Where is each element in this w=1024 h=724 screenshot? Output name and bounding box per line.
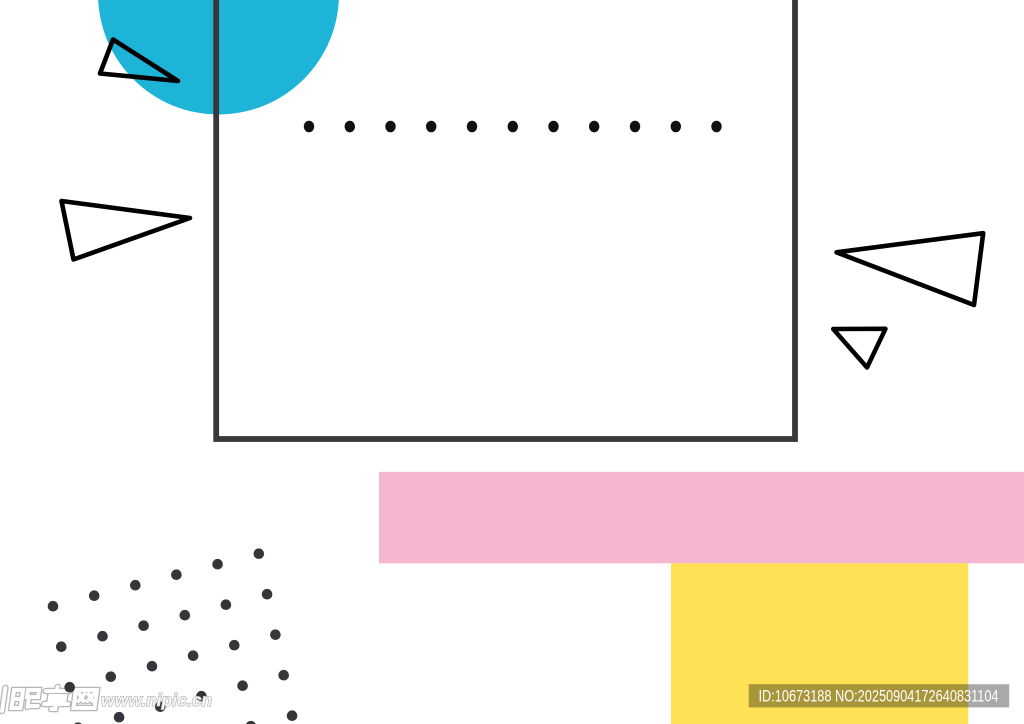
svg-text:www.nipic.cn: www.nipic.cn <box>101 690 212 710</box>
svg-text:ID:10673188 NO:202509041726408: ID:10673188 NO:20250904172640831104 <box>759 688 999 706</box>
